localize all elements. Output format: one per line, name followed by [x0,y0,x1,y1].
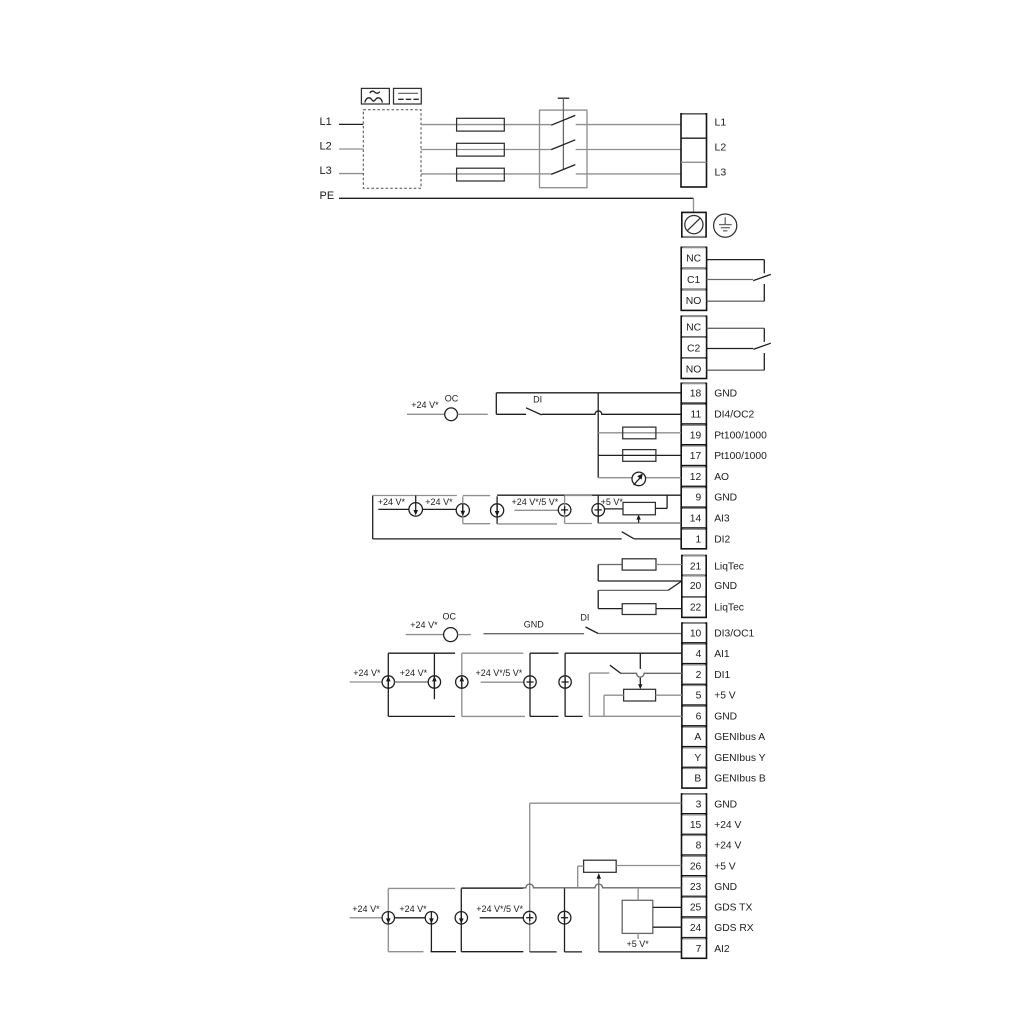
svg-text:L1: L1 [715,117,727,129]
svg-text:GND: GND [714,711,737,722]
svg-text:+24 V*: +24 V* [411,400,439,410]
svg-text:DI: DI [533,395,542,405]
svg-text:Y: Y [694,753,701,764]
svg-text:NC: NC [686,254,702,265]
svg-text:+24 V*: +24 V* [399,904,427,914]
svg-text:L3: L3 [320,165,332,177]
svg-text:C1: C1 [687,275,701,286]
svg-text:12: 12 [690,472,702,483]
svg-text:20: 20 [690,581,702,592]
svg-text:+24 V*: +24 V* [410,620,438,630]
svg-text:10: 10 [690,628,702,639]
svg-text:GENIbus Y: GENIbus Y [714,753,765,764]
svg-text:PE: PE [320,190,335,202]
svg-text:AI1: AI1 [714,649,730,660]
svg-text:9: 9 [695,493,701,504]
svg-text:GENIbus B: GENIbus B [714,774,766,785]
svg-text:+24 V*/5 V*: +24 V*/5 V* [476,904,523,914]
svg-text:AI2: AI2 [714,944,730,955]
svg-text:24: 24 [690,923,702,934]
svg-text:3: 3 [696,799,702,810]
svg-text:+24 V: +24 V [714,841,741,852]
svg-text:+5 V: +5 V [714,691,736,702]
svg-text:OC: OC [443,612,457,622]
svg-text:DI1: DI1 [714,670,730,681]
svg-text:+5 V: +5 V [714,861,736,872]
svg-text:1: 1 [695,534,701,545]
svg-text:18: 18 [690,389,702,400]
svg-text:GND: GND [714,799,737,810]
svg-text:+24 V*: +24 V* [352,904,380,914]
svg-text:DI3/OC1: DI3/OC1 [714,628,754,639]
svg-text:+24 V*/5 V*: +24 V*/5 V* [512,497,559,507]
svg-text:LiqTec: LiqTec [714,561,744,572]
svg-text:Pt100/1000: Pt100/1000 [714,430,767,441]
svg-text:23: 23 [690,882,702,893]
svg-text:L2: L2 [320,141,332,153]
svg-text:21: 21 [690,561,702,572]
svg-text:AO: AO [714,472,729,483]
svg-text:GDS TX: GDS TX [714,903,752,914]
svg-text:7: 7 [696,944,702,955]
svg-text:14: 14 [690,514,702,525]
svg-text:17: 17 [690,451,702,462]
svg-text:26: 26 [690,861,702,872]
svg-text:+24 V*: +24 V* [353,668,381,678]
svg-text:GND: GND [524,619,545,629]
svg-text:GND: GND [714,493,737,504]
svg-text:C2: C2 [687,344,701,355]
svg-text:L2: L2 [715,141,727,153]
svg-text:GND: GND [714,882,737,893]
svg-text:DI: DI [580,613,589,623]
svg-text:+24 V: +24 V [714,820,741,831]
svg-text:AI3: AI3 [714,514,730,525]
svg-text:A: A [694,732,701,743]
svg-text:2: 2 [696,670,702,681]
svg-text:22: 22 [690,603,702,614]
svg-text:19: 19 [690,430,702,441]
svg-text:+5 V*: +5 V* [601,497,624,507]
svg-text:+24 V*/5 V*: +24 V*/5 V* [476,668,523,678]
svg-text:5: 5 [696,691,702,702]
svg-text:+24 V*: +24 V* [400,668,428,678]
svg-text:NO: NO [686,365,702,376]
svg-text:8: 8 [696,841,702,852]
svg-text:DI4/OC2: DI4/OC2 [714,410,754,421]
svg-text:15: 15 [690,820,702,831]
svg-text:+24 V*: +24 V* [425,497,453,507]
svg-text:GND: GND [714,389,737,400]
svg-text:25: 25 [690,903,702,914]
svg-text:L1: L1 [320,116,332,128]
svg-text:NO: NO [686,296,702,307]
svg-text:NC: NC [686,323,702,334]
svg-text:B: B [694,774,701,785]
svg-text:+24 V*: +24 V* [378,497,406,507]
svg-text:OC: OC [445,393,459,403]
svg-text:LiqTec: LiqTec [714,603,744,614]
svg-text:Pt100/1000: Pt100/1000 [714,451,767,462]
svg-text:4: 4 [696,649,702,660]
svg-text:GENIbus A: GENIbus A [714,732,765,743]
svg-text:+5 V*: +5 V* [627,939,650,949]
svg-text:GND: GND [714,581,737,592]
svg-text:DI2: DI2 [714,534,730,545]
svg-text:11: 11 [690,410,701,421]
svg-text:GDS RX: GDS RX [714,923,754,934]
svg-text:6: 6 [696,711,702,722]
svg-text:L3: L3 [715,166,727,178]
